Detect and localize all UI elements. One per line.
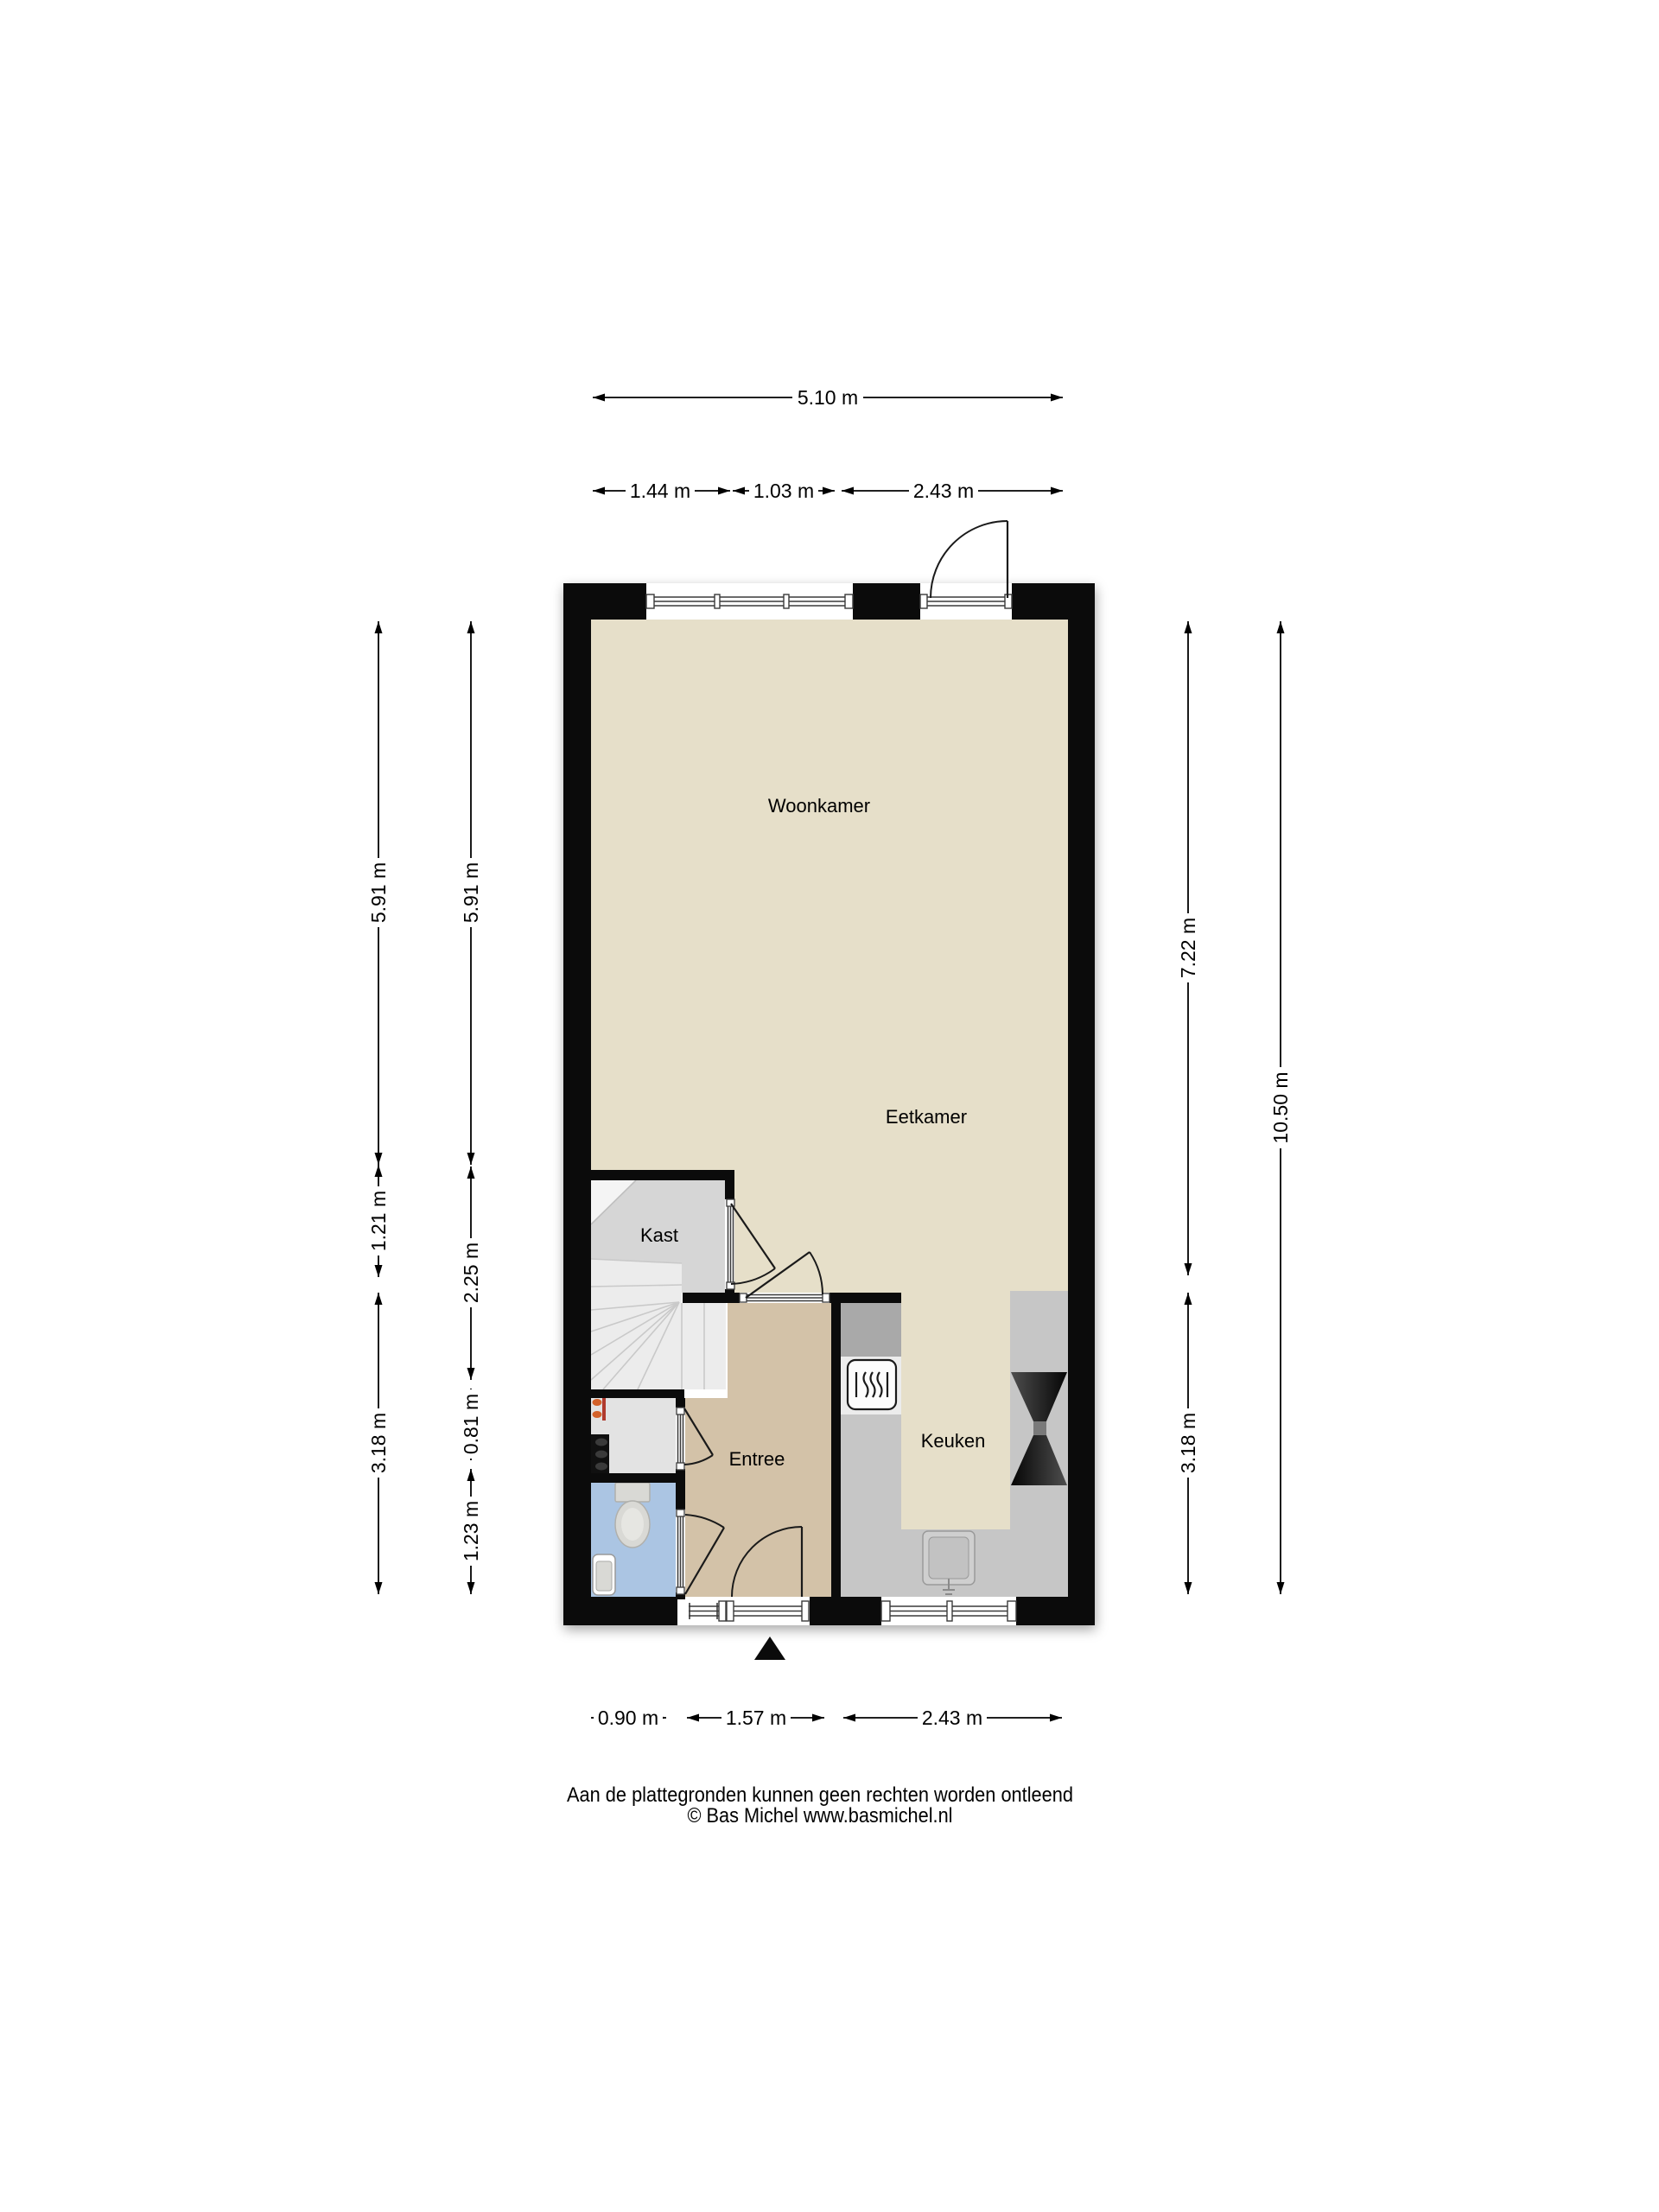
svg-text:Entree: Entree: [729, 1448, 785, 1470]
svg-text:2.43 m: 2.43 m: [913, 480, 974, 502]
svg-text:© Bas Michel www.basmichel.nl: © Bas Michel www.basmichel.nl: [688, 1804, 953, 1827]
svg-text:5.10 m: 5.10 m: [798, 386, 858, 409]
svg-text:3.18 m: 3.18 m: [1177, 1413, 1199, 1473]
svg-text:0.81 m: 0.81 m: [460, 1394, 482, 1454]
svg-text:0.90 m: 0.90 m: [598, 1707, 658, 1729]
svg-text:1.03 m: 1.03 m: [753, 480, 814, 502]
svg-text:5.91 m: 5.91 m: [367, 862, 390, 923]
svg-text:3.18 m: 3.18 m: [367, 1413, 390, 1473]
svg-text:1.44 m: 1.44 m: [630, 480, 690, 502]
svg-text:Kast: Kast: [640, 1224, 678, 1246]
svg-text:2.25 m: 2.25 m: [460, 1243, 482, 1303]
svg-text:Woonkamer: Woonkamer: [768, 795, 870, 817]
svg-text:Keuken: Keuken: [921, 1430, 986, 1452]
svg-text:Eetkamer: Eetkamer: [886, 1106, 967, 1128]
svg-text:1.23 m: 1.23 m: [460, 1501, 482, 1561]
svg-text:1.21 m: 1.21 m: [367, 1191, 390, 1251]
svg-text:5.91 m: 5.91 m: [460, 862, 482, 923]
svg-text:10.50 m: 10.50 m: [1269, 1071, 1292, 1143]
svg-text:2.43 m: 2.43 m: [922, 1707, 982, 1729]
svg-text:7.22 m: 7.22 m: [1177, 918, 1199, 978]
svg-text:1.57 m: 1.57 m: [726, 1707, 786, 1729]
svg-text:Aan de plattegronden kunnen ge: Aan de plattegronden kunnen geen rechten…: [567, 1783, 1073, 1807]
